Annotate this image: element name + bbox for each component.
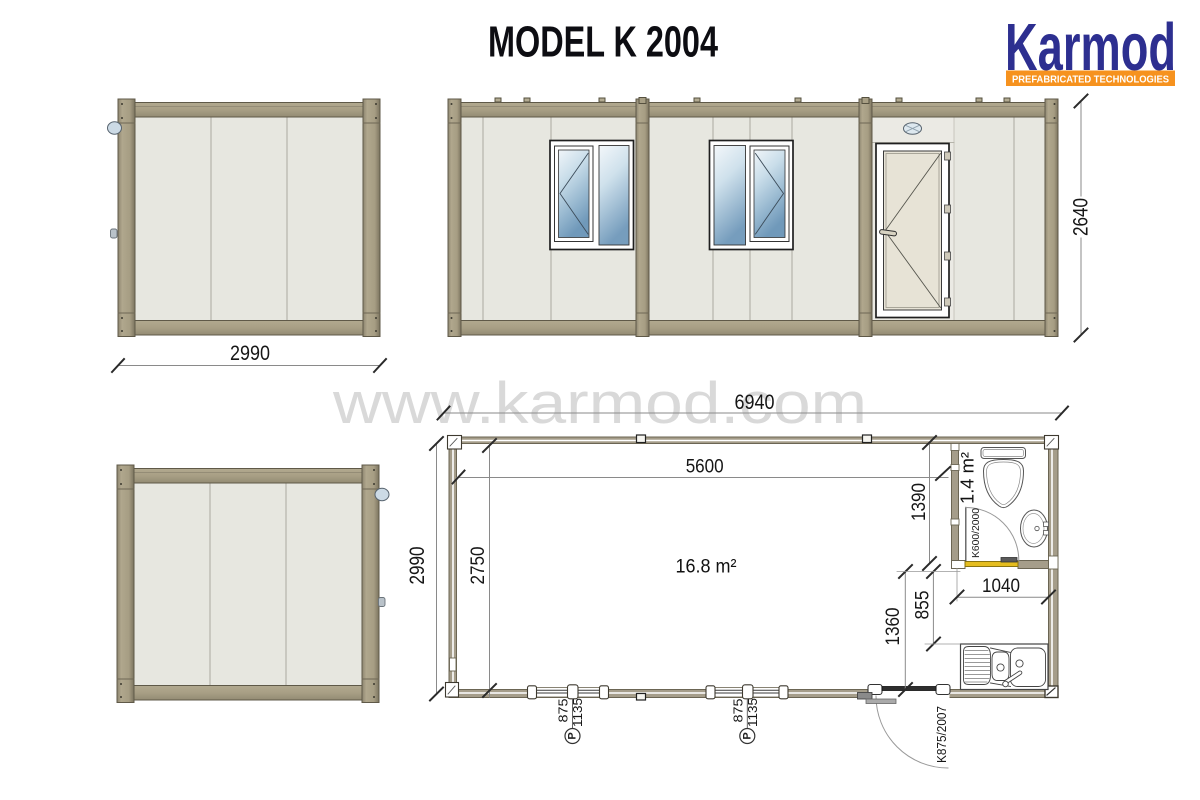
svg-text:1390: 1390 — [909, 483, 930, 521]
svg-text:2990: 2990 — [406, 547, 429, 585]
svg-text:1135: 1135 — [570, 698, 585, 727]
svg-text:MODEL K 2004: MODEL K 2004 — [488, 18, 718, 67]
svg-text:16.8 m²: 16.8 m² — [676, 557, 737, 578]
svg-text:2990: 2990 — [230, 342, 270, 365]
svg-text:1040: 1040 — [982, 576, 1020, 597]
svg-text:855: 855 — [913, 591, 934, 620]
svg-text:www.karmod.com: www.karmod.com — [332, 371, 867, 436]
svg-text:5600: 5600 — [686, 457, 724, 478]
svg-text:1360: 1360 — [883, 608, 904, 646]
svg-text:P: P — [741, 732, 753, 739]
svg-text:875: 875 — [730, 699, 745, 723]
svg-text:875: 875 — [556, 699, 571, 723]
svg-text:1135: 1135 — [745, 698, 760, 727]
svg-text:K875/2007: K875/2007 — [934, 706, 949, 763]
svg-text:K600/2000: K600/2000 — [970, 508, 982, 558]
svg-text:2640: 2640 — [1070, 198, 1093, 236]
svg-text:6940: 6940 — [735, 391, 775, 414]
svg-text:P: P — [567, 732, 579, 739]
svg-text:1.4 m²: 1.4 m² — [958, 452, 978, 504]
svg-text:PREFABRICATED TECHNOLOGIES: PREFABRICATED TECHNOLOGIES — [1012, 74, 1169, 86]
svg-text:2750: 2750 — [468, 547, 489, 585]
